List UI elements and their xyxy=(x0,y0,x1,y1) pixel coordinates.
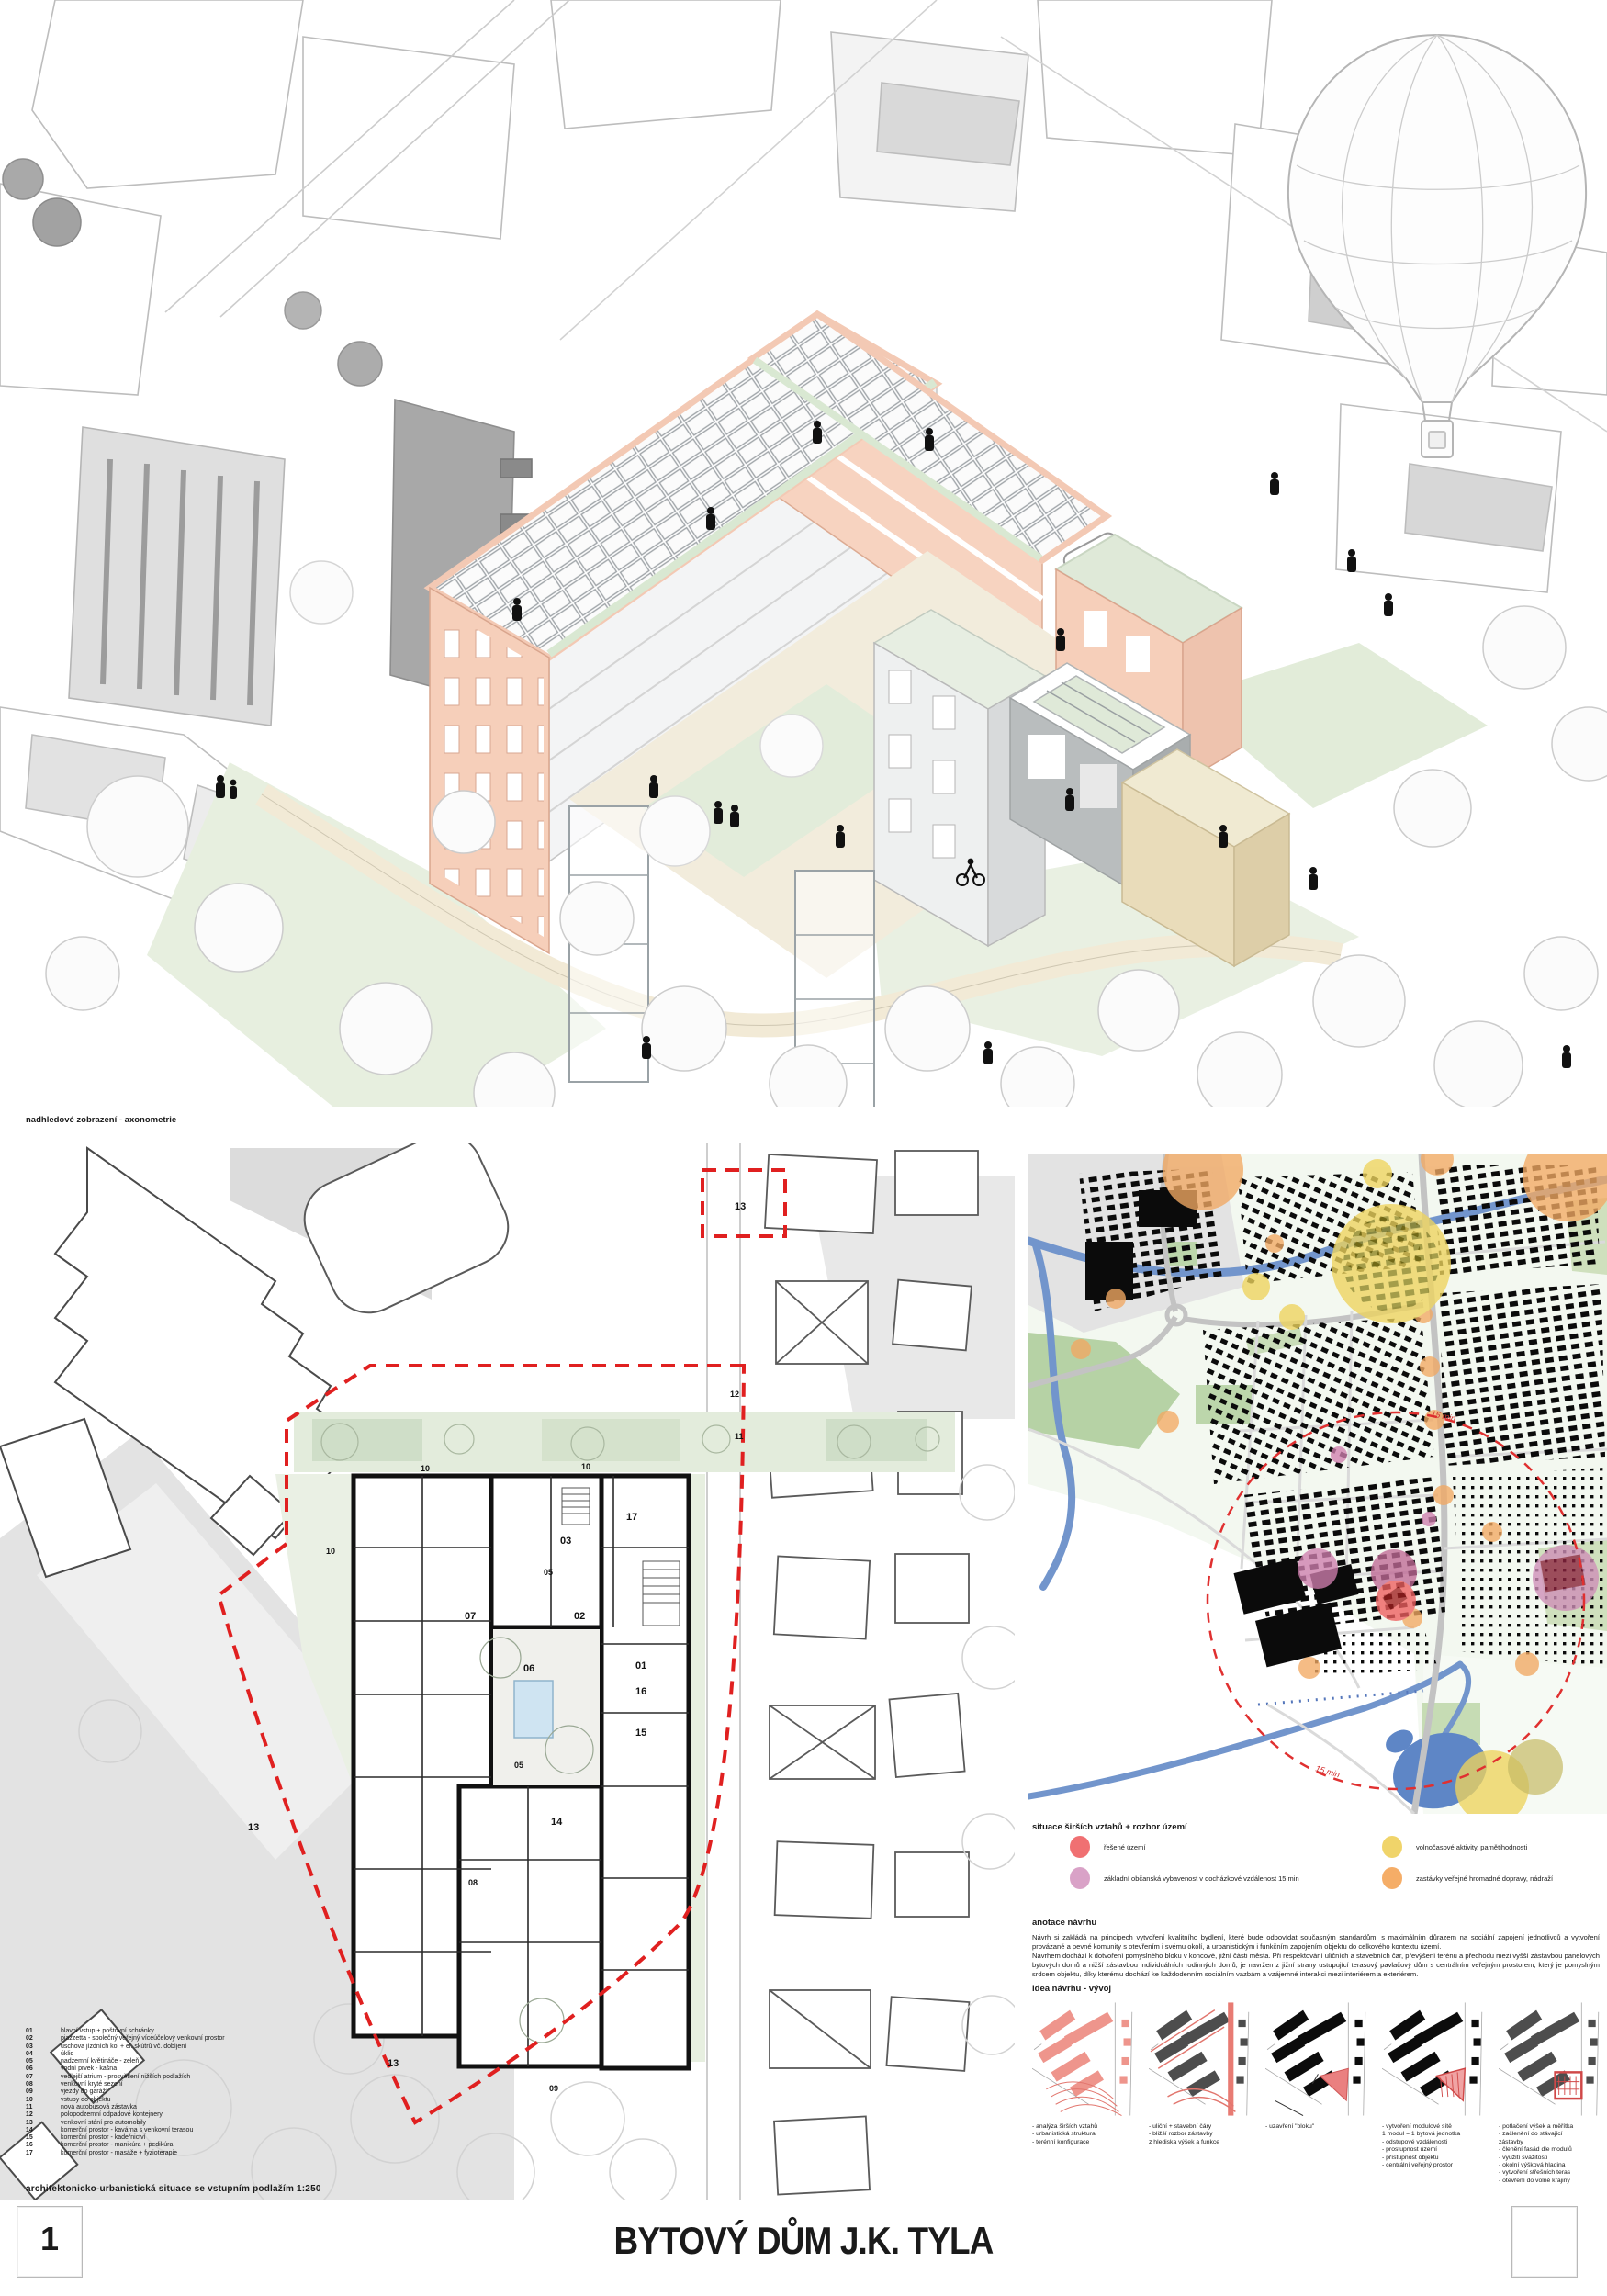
sheet-box-right xyxy=(1511,2206,1578,2278)
svg-text:02: 02 xyxy=(574,1611,585,1622)
list-item: 14komerční prostor - kavárna s venkovní … xyxy=(26,2127,457,2134)
idea-caption-2: - uliční + stavební čáry - bližší rozbor… xyxy=(1149,2123,1261,2146)
list-item: 11nová autobusová zástavka xyxy=(26,2104,457,2111)
list-item: 05nadzemní květináče - zeleň xyxy=(26,2058,457,2065)
idea-heading: idea návrhu - vývoj xyxy=(1032,1984,1111,1994)
sheet-number-box: 1 xyxy=(17,2206,83,2278)
annotation-heading: anotace návrhu xyxy=(1032,1918,1600,1928)
svg-text:15: 15 xyxy=(635,1728,646,1739)
list-item: 17komerční prostor - masáže + fyzioterap… xyxy=(26,2150,457,2157)
idea-step-1 xyxy=(1032,2000,1141,2118)
svg-text:06: 06 xyxy=(523,1663,534,1674)
svg-text:03: 03 xyxy=(560,1536,571,1547)
svg-text:17: 17 xyxy=(626,1512,637,1523)
water-feature xyxy=(514,1681,553,1738)
svg-text:13: 13 xyxy=(735,1201,746,1212)
page-title: BYTOVÝ DŮM J.K. TYLA xyxy=(96,2219,1511,2263)
svg-text:08: 08 xyxy=(468,1878,478,1887)
list-item: 10vstupy do objektu xyxy=(26,2097,457,2104)
list-item: 03úschova jízdních kol + el. skútrů vč. … xyxy=(26,2043,457,2051)
plan-caption: architektonicko-urbanistická situace se … xyxy=(26,2184,321,2194)
svg-text:13: 13 xyxy=(248,1822,259,1833)
svg-text:16: 16 xyxy=(635,1686,646,1697)
annotation-paragraph: Návrh si zakládá na principech vytvoření… xyxy=(1032,1933,1600,1952)
idea-step-5 xyxy=(1499,2000,1607,2118)
person-icon xyxy=(813,421,822,444)
svg-text:10: 10 xyxy=(326,1547,335,1556)
axon-caption: nadhledové zobrazení - axonometrie xyxy=(26,1115,176,1125)
context-map: 15 min 15 min xyxy=(1028,1154,1607,1814)
legend-item: volnočasové aktivity, pamětihodnosti xyxy=(1381,1835,1527,1859)
list-item: 12polopodzemní odpadové kontejnery xyxy=(26,2111,457,2119)
idea-step-2 xyxy=(1149,2000,1257,2118)
list-item: 16komerční prostor - manikúra + pedikúra xyxy=(26,2142,457,2149)
idea-step-3 xyxy=(1265,2000,1374,2118)
idea-caption-4: - vytvoření modulové sítě 1 modul = 1 by… xyxy=(1382,2123,1494,2169)
list-item: 08venkovní kryté sezení xyxy=(26,2081,457,2088)
annotation: anotace návrhu Návrh si zakládá na princ… xyxy=(1032,1918,1600,1979)
sheet-number: 1 xyxy=(17,2220,82,2258)
axonometric-drawing xyxy=(0,0,1607,1107)
idea-step-4 xyxy=(1382,2000,1490,2118)
legend-item: řešené území xyxy=(1069,1835,1145,1859)
legend-dot xyxy=(1069,1866,1091,1890)
list-item: 15komerční prostor - kadeřnictví xyxy=(26,2134,457,2142)
list-item: 07vedlejší atrium - prosvětlení nižších … xyxy=(26,2074,457,2081)
svg-text:10: 10 xyxy=(421,1464,430,1473)
legend-dot xyxy=(1381,1835,1403,1859)
legend-dot xyxy=(1069,1835,1091,1859)
svg-text:05: 05 xyxy=(544,1568,553,1577)
legend-item: základní občanská vybavenost v docházkov… xyxy=(1069,1866,1299,1890)
list-item: 09vjezdy do garáží xyxy=(26,2088,457,2096)
plan-legend: 01hlavní vstup + poštovní schránky 02pia… xyxy=(26,2028,457,2157)
list-item: 04úklid xyxy=(26,2051,457,2058)
list-item: 02piazzetta - společný veřejný víceúčelo… xyxy=(26,2035,457,2043)
legend-dot xyxy=(1381,1866,1403,1890)
svg-text:09: 09 xyxy=(549,2084,558,2093)
hot-air-balloon-icon xyxy=(1288,35,1586,457)
idea-caption-3: - uzavření "bloku" xyxy=(1265,2123,1377,2131)
legend-item: zastávky veřejné hromadné dopravy, nádra… xyxy=(1381,1866,1553,1890)
svg-text:12: 12 xyxy=(730,1390,739,1399)
svg-text:05: 05 xyxy=(514,1761,523,1770)
svg-text:07: 07 xyxy=(465,1611,476,1622)
svg-text:01: 01 xyxy=(635,1660,646,1671)
list-item: 01hlavní vstup + poštovní schránky xyxy=(26,2028,457,2035)
svg-text:14: 14 xyxy=(551,1817,563,1828)
svg-text:11: 11 xyxy=(735,1432,744,1441)
annotation-paragraph: Návrhem dochází k dotvoření pomyslného b… xyxy=(1032,1952,1600,1979)
floor-plan xyxy=(354,1476,689,2068)
idea-caption-1: - analýza širších vztahů - urbanistická … xyxy=(1032,2123,1144,2146)
list-item: 13venkovní stání pro automobily xyxy=(26,2120,457,2127)
list-item: 06vodní prvek - kašna xyxy=(26,2065,457,2073)
presentation-board: nadhledové zobrazení - axonometrie xyxy=(0,0,1607,2296)
map-caption: situace širších vztahů + rozbor území xyxy=(1032,1822,1187,1832)
idea-caption-5: - potlačení výšek a měřítka - začlenění … xyxy=(1499,2123,1607,2185)
svg-text:10: 10 xyxy=(581,1462,590,1471)
